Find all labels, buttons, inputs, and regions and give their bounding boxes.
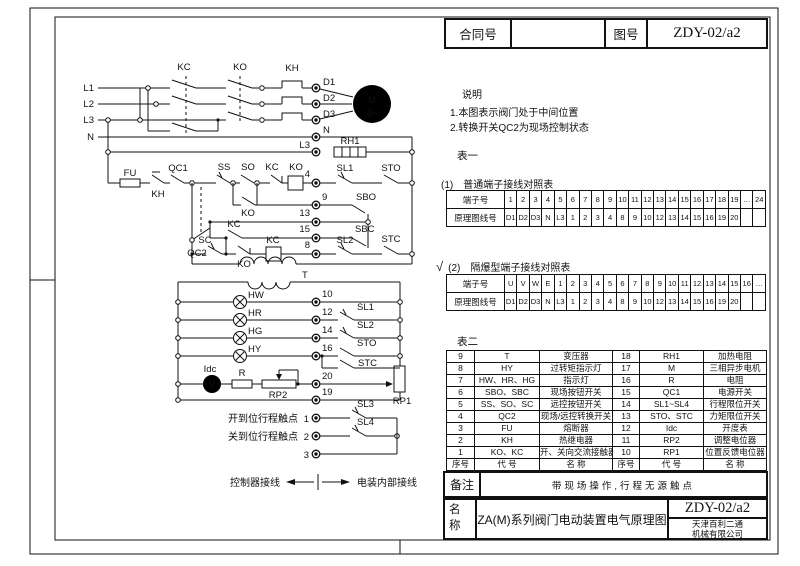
table-cell: 12 — [641, 191, 653, 209]
terminal-4 — [312, 179, 320, 187]
label-stc: STC — [382, 234, 401, 245]
table-cell: SL1~SL4 — [640, 399, 704, 411]
table-row: 2KH热继电器11RP2调整电位器 — [447, 435, 767, 447]
label-term-14: 14 — [322, 325, 333, 336]
label-term-n: N — [323, 125, 330, 136]
table-cell: 8 — [447, 363, 475, 375]
table-cell: 热继电器 — [540, 435, 613, 447]
feedback-section: Idc V R RP2 20 RP1 19 — [176, 364, 412, 407]
table-cell: L3 — [554, 293, 566, 311]
label-term-12: 12 — [322, 307, 333, 318]
label-kc-contactor: KC — [177, 62, 190, 73]
label-kc-parallel: KC — [227, 219, 240, 230]
table-cell — [753, 209, 766, 227]
wiring-boundary-legend: 控制器接线 电装内部接线 — [230, 474, 417, 490]
travel-contact-section: 开到位行程触点 1 SL3 关到位行程触点 2 SL4 3 — [228, 399, 399, 461]
table-cell: 3 — [579, 275, 591, 293]
table-cell: 12 — [691, 275, 703, 293]
table-cell: 16 — [691, 191, 703, 209]
label-term-3: 3 — [304, 450, 309, 461]
table-cell: 19 — [716, 293, 728, 311]
label-phase-l1: L1 — [83, 83, 94, 94]
table-cell: RP1 — [640, 447, 704, 459]
terminal-10 — [312, 298, 320, 306]
table-cell: RH1 — [640, 351, 704, 363]
table-cell: 现场/远控转换开关 — [540, 411, 613, 423]
coil-ko — [288, 176, 303, 190]
meter-glyph: V — [209, 380, 216, 391]
table-cell: STO、STC — [640, 411, 704, 423]
table-cell: V — [517, 275, 529, 293]
table-cell: 9 — [604, 191, 616, 209]
table-cell: 9 — [629, 293, 641, 311]
table-cell: 3 — [529, 191, 541, 209]
table-row: 9T变压器18RH1加热电阻 — [447, 351, 767, 363]
table-cell: 2 — [579, 209, 591, 227]
table-cell: 14 — [716, 275, 728, 293]
table-cell: 13 — [654, 191, 666, 209]
table-cell: 13 — [613, 411, 640, 423]
remark-label: 备注 — [445, 473, 481, 496]
table-cell: N — [542, 209, 554, 227]
table-cell: 4 — [447, 411, 475, 423]
table-cell: … — [741, 191, 753, 209]
table-cell: 19 — [728, 191, 740, 209]
note-item: 1.本图表示阀门处于中间位置 — [450, 106, 750, 121]
table-cell: W — [529, 275, 541, 293]
table-cell: 15 — [691, 209, 703, 227]
label-term-d3: D3 — [323, 109, 335, 120]
label-internal-wiring: 电装内部接线 — [357, 476, 417, 489]
table-cell: 现场按钮开关 — [540, 387, 613, 399]
contract-no-label: 合同号 — [446, 20, 512, 47]
table-cell: 4 — [542, 191, 554, 209]
table-cell: 序号 — [447, 459, 475, 471]
label-ko-contactor: KO — [233, 62, 247, 73]
table-cell: D3 — [529, 293, 541, 311]
table-cell: 18 — [613, 351, 640, 363]
label-open-contact: 开到位行程触点 — [228, 412, 298, 425]
terminal-n — [312, 133, 320, 141]
table-cell: 8 — [591, 191, 603, 209]
drawing-sheet: L1 L2 L3 N KC KO KH D1 D2 D3 M 3~ N L3 R… — [0, 0, 800, 566]
table-cell: 20 — [728, 209, 740, 227]
table-cell: 1 — [447, 447, 475, 459]
drawing-title: ZA(M)系列阀门电动装置电气原理图 — [477, 500, 669, 538]
table-row: 1KO、KC开、关向交流接触器10RP1位置反馈电位器 — [447, 447, 767, 459]
table-cell: 16 — [613, 375, 640, 387]
terminal-19 — [312, 396, 320, 404]
table-cell: 19 — [716, 209, 728, 227]
label-term-d1: D1 — [323, 77, 335, 88]
table-cell: 1 — [567, 293, 579, 311]
table-cell: 10 — [666, 275, 678, 293]
label-term-4: 4 — [305, 169, 310, 180]
table-cell: 4 — [604, 209, 616, 227]
table-cell: SBO、SBC — [475, 387, 540, 399]
terminal-d1 — [312, 84, 320, 92]
table-cell: 开、关向交流接触器 — [540, 447, 613, 459]
label-idc: Idc — [204, 364, 217, 375]
terminal-3 — [312, 450, 320, 458]
table1-sub2-title: √(2)隔爆型端子接线对照表 — [436, 259, 570, 274]
lamp-hy — [234, 350, 247, 363]
table-cell: 13 — [666, 293, 678, 311]
note-item: 2.转换开关QC2为现场控制状态 — [450, 121, 750, 136]
table-cell: T — [475, 351, 540, 363]
label-term-10: 10 — [322, 289, 333, 300]
table-cell: 17 — [703, 191, 715, 209]
table-cell: 7 — [447, 375, 475, 387]
table-cell: U — [505, 275, 517, 293]
potentiometer-rp1 — [394, 366, 405, 392]
drawing-no-value: ZDY-02/a2 — [648, 20, 766, 47]
table-cell — [741, 209, 753, 227]
label-kh-overload: KH — [285, 63, 298, 74]
table-cell: 端子号 — [447, 191, 505, 209]
label-ko-parallel: KO — [241, 208, 255, 219]
label-neutral: N — [87, 132, 94, 143]
label-sl1: SL1 — [337, 163, 354, 174]
table-cell: 16 — [741, 275, 753, 293]
table-cell: RP2 — [640, 435, 704, 447]
label-hr: HR — [248, 308, 262, 319]
label-controller-wiring: 控制器接线 — [230, 476, 280, 489]
table-row: 端子号UVWE12345678910111213141516… — [447, 275, 766, 293]
label-motor-m: M — [368, 95, 376, 106]
table-cell: E — [542, 275, 554, 293]
terminal-15 — [312, 234, 320, 242]
table-cell: 8 — [641, 275, 653, 293]
table-cell: 15 — [691, 293, 703, 311]
remark-text: 带现场操作,行程无源触点 — [481, 478, 766, 492]
table-row: 4QC2现场/远控转换开关13STO、STC力矩限位开关 — [447, 411, 767, 423]
terminal-9 — [312, 201, 320, 209]
table-cell: 10 — [641, 209, 653, 227]
table-cell: 6 — [616, 275, 628, 293]
label-phase-l2: L2 — [83, 99, 94, 110]
terminal-12 — [312, 316, 320, 324]
table-cell: D3 — [529, 209, 541, 227]
table-cell: 3 — [447, 423, 475, 435]
table-cell: 2 — [517, 191, 529, 209]
table-cell: 15 — [728, 275, 740, 293]
table-cell: 电阻 — [704, 375, 767, 387]
table-cell: 序号 — [613, 459, 640, 471]
table-cell: 2 — [447, 435, 475, 447]
table-cell: 20 — [728, 293, 740, 311]
terminal-16 — [312, 352, 320, 360]
table-cell: 14 — [678, 209, 690, 227]
table-cell: 10 — [613, 447, 640, 459]
terminal-8 — [312, 250, 320, 258]
table-cell: 16 — [703, 293, 715, 311]
table-row: 端子号12345678910111213141516171819…24 — [447, 191, 766, 209]
table-row: 8HY过转矩指示灯17M三相异步电机 — [447, 363, 767, 375]
table-cell: 3 — [591, 209, 603, 227]
table-cell: 17 — [613, 363, 640, 375]
table-cell: 10 — [641, 293, 653, 311]
table-cell: QC2 — [475, 411, 540, 423]
table-cell: 14 — [666, 191, 678, 209]
control-section: FU KH QC1 SS SO KC KO 4 SL1 STO KO 9 SBO… — [108, 162, 414, 270]
table-cell: 力矩限位开关 — [704, 411, 767, 423]
table-cell: L3 — [554, 209, 566, 227]
table-row: 3FU熔断器12Idc开度表 — [447, 423, 767, 435]
terminal-d2 — [312, 100, 320, 108]
table-cell: 14 — [678, 293, 690, 311]
table-cell: 14 — [613, 399, 640, 411]
table-cell: 4 — [604, 293, 616, 311]
terminal-1 — [312, 414, 320, 422]
label-sl4: SL4 — [357, 417, 374, 428]
name-label: 名称 — [445, 500, 477, 538]
label-fu: FU — [124, 168, 137, 179]
label-term-20: 20 — [322, 371, 333, 382]
table-cell: 15 — [613, 387, 640, 399]
table-cell: N — [542, 293, 554, 311]
remark-block: 备注 带现场操作,行程无源触点 — [443, 471, 768, 498]
table-cell: 12 — [654, 209, 666, 227]
label-kc-coil: KC — [266, 235, 279, 246]
terminal-20 — [312, 380, 320, 388]
table-cell: 名 称 — [704, 459, 767, 471]
table-cell: 1 — [567, 209, 579, 227]
table-cell: Idc — [640, 423, 704, 435]
label-motor-phase: 3~ — [367, 108, 378, 119]
table-cell: 9 — [629, 209, 641, 227]
terminal-map-table-flameproof: 端子号UVWE12345678910111213141516…原理图线号D1D2… — [446, 274, 766, 311]
table-cell: QC1 — [640, 387, 704, 399]
table-cell: 远控按钮开关 — [540, 399, 613, 411]
table-cell: 9 — [654, 275, 666, 293]
table-cell: 电源开关 — [704, 387, 767, 399]
table-cell: HY — [475, 363, 540, 375]
table-cell: 代 号 — [640, 459, 704, 471]
table-cell: 8 — [616, 293, 628, 311]
drawing-number: ZDY-02/a2 — [669, 500, 766, 519]
table-row: 原理图线号D1D2D3NL31234891012131415161920 — [447, 293, 766, 311]
table-cell: D1 — [505, 293, 517, 311]
label-r: R — [239, 368, 246, 379]
label-hy: HY — [248, 344, 262, 355]
label-rp1: RP1 — [393, 396, 411, 407]
table-cell: 位置反馈电位器 — [704, 447, 767, 459]
label-term-19: 19 — [322, 387, 333, 398]
table-cell: 6 — [567, 191, 579, 209]
label-sl1-lamp: SL1 — [357, 302, 374, 313]
table-cell: D2 — [517, 293, 529, 311]
table-cell: 1 — [505, 191, 517, 209]
label-qc1: QC1 — [168, 163, 188, 174]
table-cell: 调整电位器 — [704, 435, 767, 447]
name-block: 名称 ZA(M)系列阀门电动装置电气原理图 ZDY-02/a2 天津百利二通 机… — [443, 498, 768, 540]
label-close-contact: 关到位行程触点 — [228, 430, 298, 443]
label-hg: HG — [248, 326, 262, 337]
label-term-16: 16 — [322, 343, 333, 354]
label-hw: HW — [248, 290, 264, 301]
table-cell: 原理图线号 — [447, 209, 505, 227]
table-cell: 11 — [629, 191, 641, 209]
label-rh1: RH1 — [340, 136, 359, 147]
table-cell: 熔断器 — [540, 423, 613, 435]
label-sto-lamp: STO — [357, 338, 376, 349]
table-row: 5SS、SO、SC远控按钮开关14SL1~SL4行程限位开关 — [447, 399, 767, 411]
table-cell: 18 — [716, 191, 728, 209]
table-cell: 名 称 — [540, 459, 613, 471]
table-cell: KH — [475, 435, 540, 447]
terminal-2 — [312, 432, 320, 440]
label-term-13: 13 — [299, 208, 310, 219]
label-stc-lamp: STC — [358, 358, 377, 369]
notes-heading: 说明 — [462, 88, 750, 103]
table-cell: 7 — [579, 191, 591, 209]
table-cell: 三相异步电机 — [704, 363, 767, 375]
resistor-r — [232, 380, 252, 388]
table-cell: 加热电阻 — [704, 351, 767, 363]
table-cell: 12 — [613, 423, 640, 435]
table-cell: SS、SO、SC — [475, 399, 540, 411]
drawing-no-label: 图号 — [606, 20, 648, 47]
label-term-15: 15 — [299, 224, 310, 235]
table-cell: 代 号 — [475, 459, 540, 471]
table-cell: 8 — [616, 209, 628, 227]
notes-block: 说明 1.本图表示阀门处于中间位置 2.转换开关QC2为现场控制状态 — [450, 88, 750, 136]
table-row: 原理图线号D1D2D3NL31234891012131415161920 — [447, 209, 766, 227]
label-term-l3: L3 — [299, 140, 310, 151]
label-term-d2: D2 — [323, 93, 335, 104]
table-cell: 过转矩指示灯 — [540, 363, 613, 375]
table-row: 7HW、HR、HG指示灯16R电阻 — [447, 375, 767, 387]
label-term-2: 2 — [304, 432, 309, 443]
table-cell: 11 — [613, 435, 640, 447]
table-cell: 4 — [591, 275, 603, 293]
table-cell: 原理图线号 — [447, 293, 505, 311]
lamp-hw — [234, 296, 247, 309]
indication-section: HW 10 HR 12 SL1 HG 14 SL2 HY 16 STO STC — [176, 289, 403, 369]
label-sl3: SL3 — [357, 399, 374, 410]
label-sl2: SL2 — [337, 235, 354, 246]
table-cell: D2 — [517, 209, 529, 227]
label-so: SO — [241, 162, 255, 173]
table-cell: 7 — [629, 275, 641, 293]
table-cell: 13 — [666, 209, 678, 227]
label-sc: SC — [198, 235, 211, 246]
table-cell: 12 — [654, 293, 666, 311]
table-row: 序号代 号名 称序号代 号名 称 — [447, 459, 767, 471]
table-cell: 9 — [447, 351, 475, 363]
lamp-hg — [234, 332, 247, 345]
table-cell: 6 — [447, 387, 475, 399]
terminal-l3 — [312, 148, 320, 156]
table-cell: 行程限位开关 — [704, 399, 767, 411]
label-phase-l3: L3 — [83, 115, 94, 126]
label-kc-nc: KC — [265, 162, 278, 173]
fuse-fu — [120, 179, 140, 187]
table-cell: … — [753, 275, 766, 293]
terminal-13 — [312, 218, 320, 226]
terminal-d3 — [312, 116, 320, 124]
table-cell: KO、KC — [475, 447, 540, 459]
label-sto: STO — [381, 163, 400, 174]
table-cell: R — [640, 375, 704, 387]
label-kh-contact: KH — [151, 189, 164, 200]
label-sbc: SBC — [355, 224, 375, 235]
table1-heading: 表一 — [457, 148, 478, 163]
table-cell: 3 — [591, 293, 603, 311]
coil-kc — [266, 247, 281, 261]
table-cell: 24 — [753, 191, 766, 209]
table-cell: FU — [475, 423, 540, 435]
table-cell: 变压器 — [540, 351, 613, 363]
table-cell: 5 — [447, 399, 475, 411]
label-term-1: 1 — [304, 414, 309, 425]
table-cell: 1 — [554, 275, 566, 293]
table1-sub1-title: (1)普通端子接线对照表 — [441, 176, 553, 191]
contract-no-value — [512, 20, 606, 47]
checkmark: √ — [436, 259, 443, 274]
table-cell: M — [640, 363, 704, 375]
table-cell — [741, 293, 753, 311]
component-list-table: 9T变压器18RH1加热电阻8HY过转矩指示灯17M三相异步电机7HW、HR、H… — [446, 350, 767, 471]
potentiometer-rp2 — [262, 380, 296, 388]
company-name: 天津百利二通 机械有限公司 — [669, 519, 766, 539]
lamp-hr — [234, 314, 247, 327]
sub2-number: (2) — [448, 263, 460, 274]
label-sbo: SBO — [356, 192, 376, 203]
table-cell: 11 — [678, 275, 690, 293]
table-cell: 2 — [567, 275, 579, 293]
table2-heading: 表二 — [457, 334, 478, 349]
table-cell: 13 — [703, 275, 715, 293]
table-cell: 端子号 — [447, 275, 505, 293]
table-cell: 指示灯 — [540, 375, 613, 387]
table-cell — [753, 293, 766, 311]
table-cell: D1 — [505, 209, 517, 227]
table-cell: 16 — [703, 209, 715, 227]
label-ss: SS — [218, 162, 231, 173]
label-ko-coil: KO — [289, 162, 303, 173]
label-term-8: 8 — [305, 240, 310, 251]
title-bar: 合同号 图号 ZDY-02/a2 — [444, 18, 768, 49]
label-rp2: RP2 — [269, 390, 287, 401]
table-cell: 开度表 — [704, 423, 767, 435]
table-cell: 5 — [554, 191, 566, 209]
table-cell: 5 — [604, 275, 616, 293]
table-row: 6SBO、SBC现场按钮开关15QC1电源开关 — [447, 387, 767, 399]
table-cell: 2 — [579, 293, 591, 311]
label-sl2-lamp: SL2 — [357, 320, 374, 331]
terminal-map-table-normal: 端子号12345678910111213141516171819…24原理图线号… — [446, 190, 766, 227]
table-cell: HW、HR、HG — [475, 375, 540, 387]
table-cell: 10 — [616, 191, 628, 209]
terminal-14 — [312, 334, 320, 342]
label-transformer-t: T — [302, 270, 308, 281]
table-cell: 15 — [678, 191, 690, 209]
label-term-9: 9 — [322, 192, 327, 203]
